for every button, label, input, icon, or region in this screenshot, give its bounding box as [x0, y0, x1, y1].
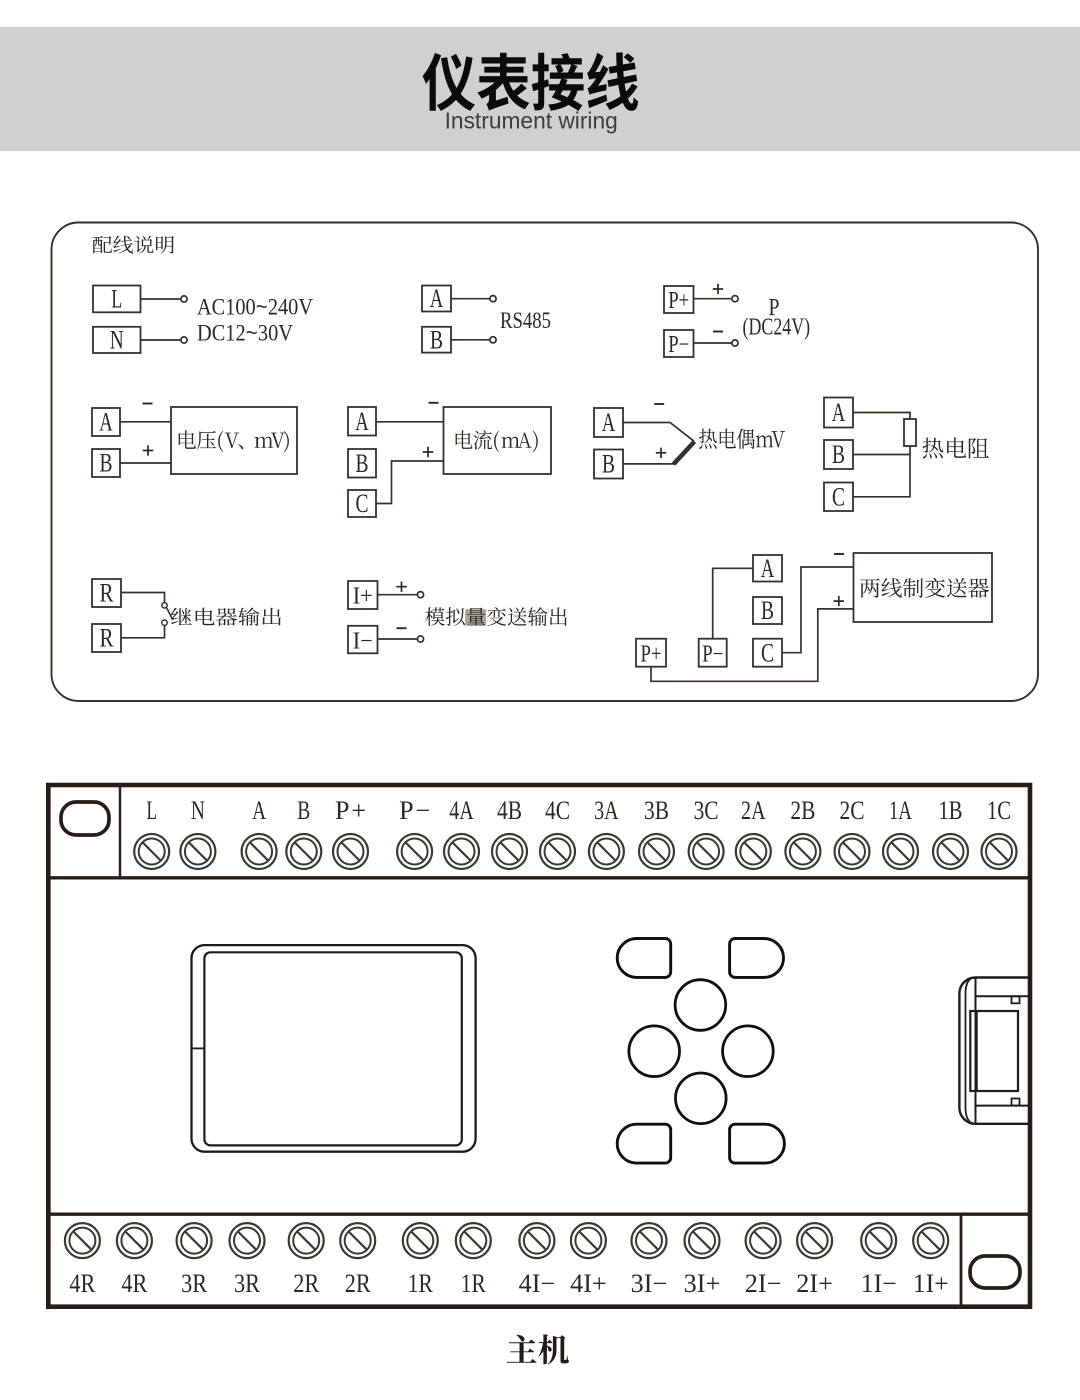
svg-text:C: C: [356, 489, 369, 518]
svg-text:I−: I−: [353, 628, 373, 654]
svg-text:4I−: 4I−: [519, 1269, 556, 1298]
svg-text:A: A: [430, 284, 444, 313]
svg-text:1I−: 1I−: [861, 1269, 897, 1298]
svg-text:B: B: [100, 449, 113, 478]
svg-text:A: A: [832, 398, 846, 427]
svg-text:A: A: [252, 796, 266, 825]
svg-text:AC100~240V: AC100~240V: [197, 295, 313, 323]
svg-text:1R: 1R: [408, 1269, 434, 1298]
svg-text:3A: 3A: [594, 796, 619, 825]
svg-text:L: L: [111, 285, 122, 314]
svg-text:4B: 4B: [497, 796, 522, 825]
svg-text:3B: 3B: [644, 796, 669, 825]
svg-text:A: A: [355, 407, 369, 436]
svg-text:1A: 1A: [889, 796, 912, 825]
svg-text:B: B: [761, 596, 774, 625]
svg-text:P−: P−: [399, 796, 430, 825]
svg-text:2B: 2B: [790, 796, 815, 825]
svg-text:1R: 1R: [461, 1269, 487, 1298]
svg-text:B: B: [356, 449, 369, 478]
svg-text:2R: 2R: [293, 1269, 320, 1298]
svg-text:A: A: [99, 408, 113, 437]
svg-text:A: A: [761, 554, 775, 583]
svg-text:1C: 1C: [987, 796, 1011, 825]
svg-text:B: B: [832, 440, 845, 469]
svg-text:R: R: [100, 579, 115, 608]
svg-text:I+: I+: [353, 584, 373, 610]
svg-text:4A: 4A: [449, 796, 474, 825]
svg-text:3C: 3C: [694, 796, 719, 825]
svg-text:2C: 2C: [840, 796, 865, 825]
svg-text:P+: P+: [668, 288, 689, 314]
svg-text:2R: 2R: [345, 1269, 372, 1298]
svg-text:DC12~30V: DC12~30V: [197, 320, 293, 348]
svg-text:P+: P+: [641, 641, 662, 667]
svg-text:B: B: [430, 325, 443, 354]
svg-text:RS485: RS485: [500, 308, 551, 334]
svg-text:R: R: [100, 624, 115, 653]
svg-text:4R: 4R: [69, 1269, 96, 1298]
svg-text:4I+: 4I+: [570, 1269, 607, 1298]
svg-text:N: N: [110, 326, 124, 355]
svg-text:A: A: [602, 408, 616, 437]
svg-text:2A: 2A: [741, 796, 766, 825]
svg-text:3I−: 3I−: [631, 1269, 668, 1298]
svg-text:2I+: 2I+: [796, 1269, 833, 1298]
svg-text:B: B: [297, 796, 310, 825]
svg-text:1B: 1B: [939, 796, 963, 825]
svg-text:B: B: [602, 450, 615, 479]
svg-text:(DC24V): (DC24V): [743, 315, 811, 341]
svg-text:3R: 3R: [181, 1269, 208, 1298]
svg-text:1I+: 1I+: [913, 1269, 949, 1298]
svg-text:N: N: [191, 796, 205, 825]
svg-text:C: C: [832, 482, 845, 511]
svg-text:L: L: [146, 796, 157, 825]
svg-text:C: C: [761, 638, 774, 667]
svg-text:4R: 4R: [121, 1269, 148, 1298]
svg-text:2I−: 2I−: [745, 1269, 782, 1298]
svg-text:P+: P+: [335, 796, 366, 825]
svg-text:3R: 3R: [234, 1269, 261, 1298]
svg-text:3I+: 3I+: [684, 1269, 721, 1298]
svg-text:P−: P−: [702, 641, 723, 667]
svg-text:4C: 4C: [545, 796, 570, 825]
svg-text:Instrument wiring: Instrument wiring: [445, 107, 618, 133]
svg-text:P−: P−: [668, 332, 689, 358]
